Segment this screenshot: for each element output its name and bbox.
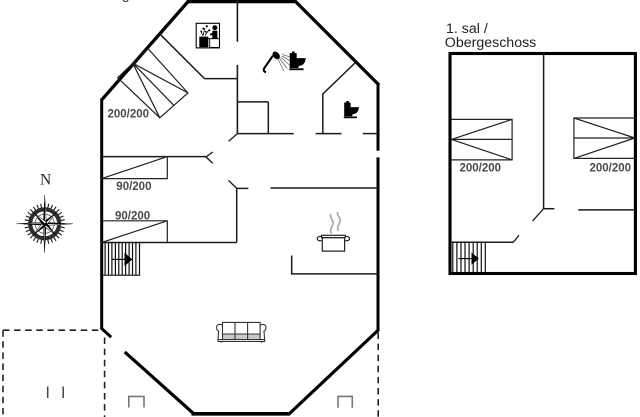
svg-text:N: N — [40, 172, 51, 189]
svg-text:200/200: 200/200 — [108, 108, 150, 120]
svg-text:200/200: 200/200 — [460, 163, 502, 175]
svg-text:200/200: 200/200 — [590, 163, 632, 175]
svg-text:90/200: 90/200 — [116, 181, 151, 193]
svg-text:Erdgeschoss: Erdgeschoss — [100, 0, 181, 2]
svg-text:Obergeschoss: Obergeschoss — [445, 35, 536, 51]
